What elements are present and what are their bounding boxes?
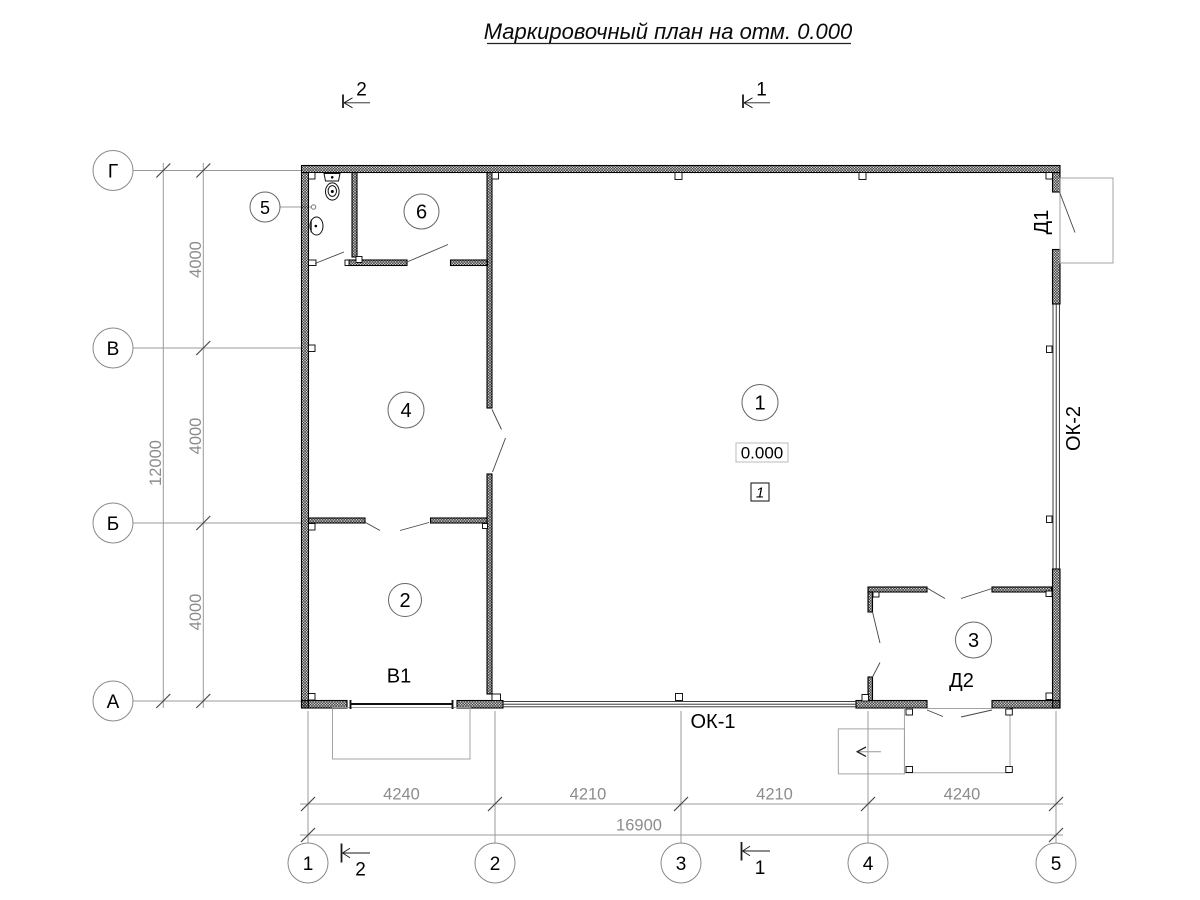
svg-text:3: 3 xyxy=(676,854,687,875)
svg-text:1: 1 xyxy=(754,393,765,415)
svg-text:4240: 4240 xyxy=(383,786,420,804)
svg-text:4000: 4000 xyxy=(187,418,205,455)
svg-text:ОК-1: ОК-1 xyxy=(691,711,736,733)
svg-text:ОК-2: ОК-2 xyxy=(1063,406,1085,451)
svg-text:4240: 4240 xyxy=(944,786,981,804)
svg-text:3: 3 xyxy=(968,630,979,652)
svg-text:2: 2 xyxy=(355,860,366,881)
svg-text:В1: В1 xyxy=(387,666,411,688)
svg-text:4210: 4210 xyxy=(756,786,793,804)
svg-text:1: 1 xyxy=(756,485,764,502)
svg-text:Маркировочный план на отм. 0.0: Маркировочный план на отм. 0.000 xyxy=(484,19,853,44)
svg-text:Г: Г xyxy=(108,162,118,183)
svg-text:1: 1 xyxy=(756,80,767,101)
svg-text:1: 1 xyxy=(755,858,766,879)
svg-text:1: 1 xyxy=(303,854,314,875)
svg-text:4000: 4000 xyxy=(187,594,205,631)
svg-text:Б: Б xyxy=(107,514,119,535)
svg-text:5: 5 xyxy=(1051,854,1062,875)
svg-text:А: А xyxy=(107,692,120,713)
svg-text:4210: 4210 xyxy=(570,786,607,804)
svg-text:5: 5 xyxy=(260,198,270,218)
svg-text:2: 2 xyxy=(490,854,501,875)
svg-text:12000: 12000 xyxy=(147,440,165,486)
svg-text:2: 2 xyxy=(356,80,367,101)
svg-text:0.000: 0.000 xyxy=(741,444,784,463)
svg-text:4: 4 xyxy=(863,854,874,875)
svg-text:4000: 4000 xyxy=(187,241,205,278)
svg-text:6: 6 xyxy=(416,202,427,224)
svg-text:Д1: Д1 xyxy=(1031,210,1053,235)
svg-text:2: 2 xyxy=(399,590,410,612)
svg-text:4: 4 xyxy=(400,400,411,422)
svg-text:Д2: Д2 xyxy=(949,670,974,692)
svg-text:В: В xyxy=(107,339,120,360)
svg-text:16900: 16900 xyxy=(616,817,662,835)
